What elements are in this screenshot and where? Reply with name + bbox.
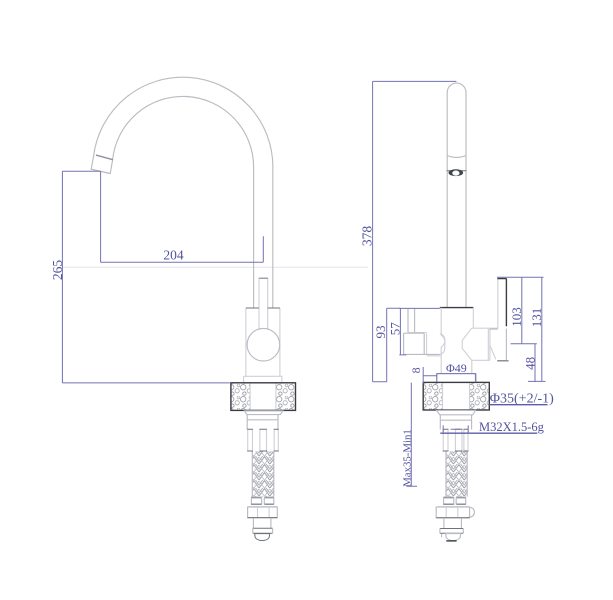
svg-text:93: 93 (373, 326, 388, 339)
svg-text:131: 131 (529, 308, 544, 328)
svg-text:Φ49: Φ49 (446, 361, 467, 375)
svg-text:265: 265 (50, 260, 65, 281)
svg-text:57: 57 (388, 322, 403, 336)
svg-text:Φ35(+2/-1): Φ35(+2/-1) (490, 392, 554, 407)
svg-text:204: 204 (163, 248, 184, 263)
svg-text:8: 8 (409, 367, 423, 373)
svg-text:48: 48 (522, 357, 537, 370)
svg-text:Max35-Min1: Max35-Min1 (402, 429, 414, 487)
svg-text:378: 378 (359, 226, 374, 247)
svg-text:M32X1.5-6g: M32X1.5-6g (479, 420, 545, 434)
svg-text:103: 103 (509, 307, 524, 327)
